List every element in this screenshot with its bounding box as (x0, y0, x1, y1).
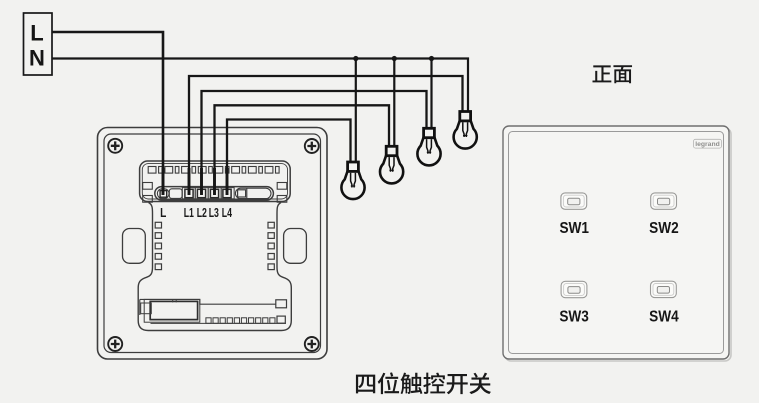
svg-text:legrand: legrand (695, 141, 720, 148)
svg-text:N: N (29, 46, 45, 71)
svg-text:SW1: SW1 (559, 220, 589, 237)
svg-text:SW4: SW4 (649, 309, 679, 326)
svg-text:L1: L1 (184, 206, 194, 220)
svg-text:L: L (160, 206, 166, 220)
svg-text:L2: L2 (197, 206, 207, 220)
svg-text:SW2: SW2 (649, 220, 679, 237)
svg-text:L3: L3 (209, 206, 219, 220)
svg-text:SW3: SW3 (559, 309, 589, 326)
svg-text:L4: L4 (222, 206, 232, 220)
svg-text:L: L (30, 21, 43, 46)
